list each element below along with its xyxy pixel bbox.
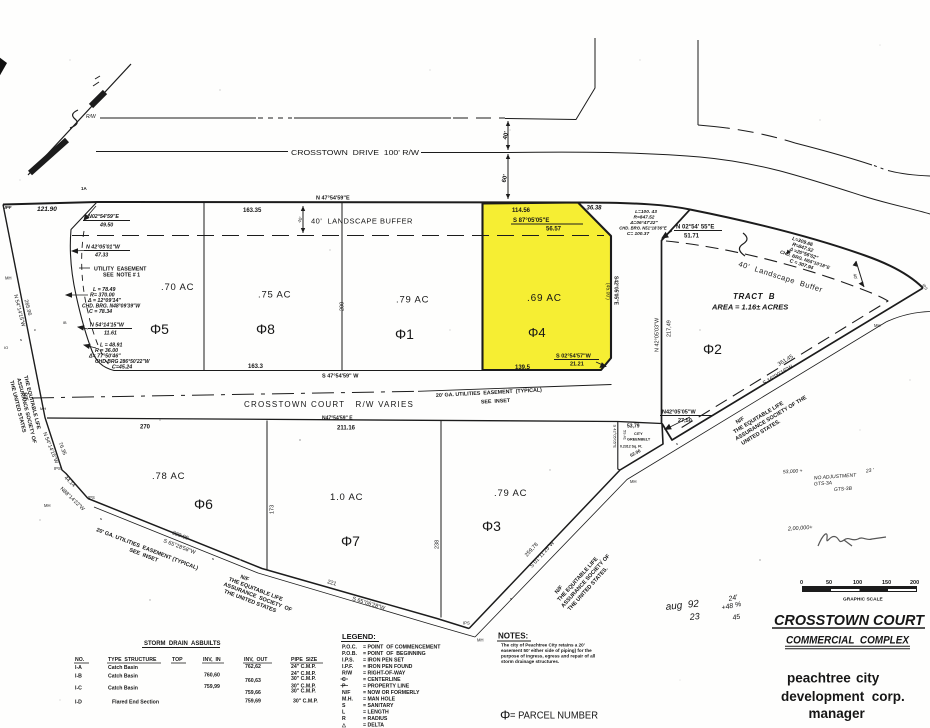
svg-text:TRACT B: TRACT B: [733, 292, 775, 301]
svg-text:= MAN HOLE: = MAN HOLE: [363, 697, 396, 703]
svg-text:P: P: [342, 684, 346, 690]
svg-text:I-A: I-A: [75, 665, 82, 671]
svg-text:Φ5: Φ5: [150, 321, 169, 337]
svg-text:Φ1: Φ1: [395, 326, 414, 342]
svg-text:= PARCEL NUMBER: = PARCEL NUMBER: [510, 710, 598, 722]
svg-text:= SANITARY: = SANITARY: [363, 703, 394, 709]
svg-text:MH: MH: [44, 503, 51, 508]
svg-text:Φ7: Φ7: [341, 533, 360, 549]
svg-text:238: 238: [435, 540, 441, 549]
svg-text:150: 150: [882, 580, 891, 586]
svg-text:21.21: 21.21: [570, 362, 584, 368]
svg-text:TYPE STRUCTURE: TYPE STRUCTURE: [108, 657, 157, 663]
svg-text:163.3: 163.3: [248, 364, 264, 370]
svg-text:AREA = 1.16± ACRES: AREA = 1.16± ACRES: [711, 303, 788, 312]
svg-text:I-B: I-B: [75, 674, 82, 680]
svg-text:= PROPERTY LINE: = PROPERTY LINE: [363, 684, 410, 690]
svg-text:759,69: 759,69: [245, 699, 261, 705]
svg-text:.79 AC: .79 AC: [396, 295, 429, 306]
svg-text:270: 270: [140, 425, 151, 431]
svg-text:Flared End Section: Flared End Section: [112, 700, 159, 706]
svg-text:= POINT OF BEGINNING: = POINT OF BEGINNING: [363, 651, 426, 657]
svg-text:CHD. BRG. N51°18'36"E: CHD. BRG. N51°18'36"E: [619, 226, 667, 231]
svg-text:Φ2: Φ2: [703, 341, 722, 357]
svg-text:= RIGHT-OF-WAY: = RIGHT-OF-WAY: [363, 671, 406, 677]
svg-text:760,63: 760,63: [245, 678, 261, 684]
svg-text:CROSSTOWN COURT: CROSSTOWN COURT: [774, 613, 925, 629]
svg-text:TOP: TOP: [172, 657, 183, 663]
svg-text:N02°54'59"E: N02°54'59"E: [88, 214, 119, 220]
svg-text:Catch Basin: Catch Basin: [108, 665, 138, 671]
svg-text:COMMERCIAL COMPLEX: COMMERCIAL COMPLEX: [786, 635, 910, 647]
svg-text:= DELTA: = DELTA: [363, 723, 384, 728]
svg-text:100: 100: [853, 580, 862, 586]
svg-text:s: s: [676, 441, 678, 446]
svg-text:.78 AC: .78 AC: [152, 471, 185, 482]
svg-text:manager: manager: [809, 706, 866, 721]
svg-text:C= 100.37: C= 100.37: [627, 231, 650, 237]
svg-text:S42°05'05"E: S42°05'05"E: [613, 276, 619, 306]
svg-text:I-C: I-C: [75, 686, 82, 692]
svg-text:Φ4: Φ4: [528, 325, 546, 340]
svg-text:purpose of ingress, egress and: purpose of ingress, egress and repair of…: [501, 654, 595, 659]
svg-text:s: s: [100, 516, 102, 521]
svg-text:S 47°54'59" W: S 47°54'59" W: [322, 374, 359, 380]
svg-text:MH: MH: [630, 479, 637, 484]
svg-text:27,50: 27,50: [678, 418, 692, 424]
svg-text:(45.00'): (45.00'): [605, 283, 611, 300]
svg-text:Φ6: Φ6: [194, 496, 213, 512]
svg-text:= LENGTH: = LENGTH: [363, 710, 389, 716]
svg-text:200: 200: [340, 302, 346, 311]
svg-text:INV, IN: INV, IN: [203, 657, 221, 663]
svg-text:easement 50' either side of pi: easement 50' either side of piping) for …: [501, 648, 592, 653]
svg-text:59.41: 59.41: [623, 430, 628, 441]
svg-text:Catch Basin: Catch Basin: [108, 674, 138, 680]
svg-text:S: S: [342, 703, 346, 709]
svg-text:R=847.52: R=847.52: [634, 215, 655, 221]
svg-text:= IRON PEN SET: = IRON PEN SET: [363, 658, 405, 664]
svg-text:= RADIUS: = RADIUS: [363, 716, 388, 722]
svg-text:development corp.: development corp.: [781, 689, 905, 704]
svg-text:114.56: 114.56: [512, 208, 531, 214]
svg-text:1.0 AC: 1.0 AC: [330, 492, 363, 503]
svg-text:I.P.S.: I.P.S.: [342, 658, 355, 664]
svg-text:S 87°05'05"E: S 87°05'05"E: [513, 218, 549, 224]
svg-text:0.2312 Sq. Ft.: 0.2312 Sq. Ft.: [620, 445, 642, 449]
svg-text:47.33: 47.33: [94, 253, 108, 259]
svg-text:INV, OUT: INV, OUT: [244, 657, 268, 663]
svg-text:211.16: 211.16: [337, 426, 356, 432]
svg-text:IPS: IPS: [54, 466, 61, 471]
svg-text:s: s: [20, 337, 22, 342]
svg-text:s: s: [510, 596, 512, 601]
svg-text:NOTES:: NOTES:: [498, 632, 528, 641]
svg-text:.70 AC: .70 AC: [161, 282, 194, 293]
svg-text:c: c: [34, 327, 36, 332]
svg-text:S 02°54'57"W: S 02°54'57"W: [556, 354, 592, 360]
svg-text:IB: IB: [63, 321, 67, 325]
svg-text:MH: MH: [477, 638, 484, 643]
svg-text:Φ8: Φ8: [256, 321, 275, 337]
svg-text:759,66: 759,66: [245, 690, 261, 696]
svg-text:PIPE SIZE: PIPE SIZE: [291, 657, 318, 663]
svg-text:= CENTERLINE: = CENTERLINE: [363, 677, 401, 683]
svg-text:760,60: 760,60: [204, 673, 220, 679]
svg-text:STORM DRAIN ASBUILTS: STORM DRAIN ASBUILTS: [144, 641, 221, 647]
svg-text:50: 50: [826, 580, 832, 586]
svg-text:0: 0: [800, 580, 803, 586]
svg-text:163.35: 163.35: [243, 208, 262, 214]
svg-text:23: 23: [688, 611, 700, 622]
svg-text:N 47°54'59"E: N 47°54'59"E: [316, 196, 350, 202]
svg-text:The city of Peachtree City ret: The city of Peachtree City retains a 20': [501, 643, 585, 648]
svg-text:MH: MH: [40, 406, 46, 411]
svg-text:N47°54'59" E: N47°54'59" E: [322, 416, 353, 422]
svg-text:CROSSTOWN DRIVE 100' R/W: CROSSTOWN DRIVE 100' R/W: [291, 148, 420, 157]
svg-text:CROSSTOWN COURT R/W VARIES: CROSSTOWN COURT R/W VARIES: [244, 400, 414, 409]
svg-text:N 02°54' 55"E: N 02°54' 55"E: [676, 225, 714, 231]
svg-text:R/W: R/W: [86, 114, 97, 120]
svg-text:.75 AC: .75 AC: [258, 290, 291, 301]
svg-text:762,62: 762,62: [245, 664, 261, 670]
svg-text:49.50: 49.50: [99, 223, 113, 229]
svg-text:L=100. 43: L=100. 43: [635, 209, 657, 215]
svg-text:I.P.F.: I.P.F.: [342, 664, 354, 670]
svg-text:36.38: 36.38: [587, 206, 603, 212]
svg-text:N42°05'05"W: N42°05'05"W: [662, 410, 696, 416]
svg-text:.69 AC: .69 AC: [527, 293, 562, 304]
svg-text:200: 200: [910, 580, 919, 586]
svg-text:759,99: 759,99: [204, 684, 220, 690]
svg-text:GRAPHIC SCALE: GRAPHIC SCALE: [843, 597, 884, 603]
svg-text:R/W: R/W: [342, 671, 352, 677]
svg-text:C: C: [342, 677, 346, 683]
svg-text:SEE NOTE # 1: SEE NOTE # 1: [103, 273, 140, 279]
svg-text:Φ3: Φ3: [482, 518, 501, 534]
svg-text:11.61: 11.61: [104, 331, 117, 337]
svg-text:= IRON PEN FOUND: = IRON PEN FOUND: [363, 664, 413, 670]
svg-text:121.90: 121.90: [37, 206, 57, 213]
svg-text:217,49: 217,49: [667, 320, 673, 337]
svg-text:.79 AC: .79 AC: [494, 488, 527, 499]
svg-text:R: R: [342, 716, 346, 722]
svg-text:51.71: 51.71: [684, 234, 700, 240]
svg-text:24" C.M.P.: 24" C.M.P.: [291, 664, 316, 670]
svg-text:N 42°05'03"W: N 42°05'03"W: [655, 317, 661, 352]
svg-text:139.5: 139.5: [515, 365, 531, 371]
svg-text:LEGEND:: LEGEND:: [342, 632, 376, 641]
svg-text:IPF: IPF: [5, 205, 12, 210]
svg-text:= POINT OF COMMENCEMENT: = POINT OF COMMENCEMENT: [363, 645, 441, 651]
svg-text:C=45.24: C=45.24: [112, 365, 132, 371]
svg-text:IPS: IPS: [463, 621, 470, 626]
svg-text:CITY: CITY: [634, 432, 643, 436]
svg-text:MH: MH: [874, 323, 881, 328]
svg-text:Φ: Φ: [500, 708, 510, 723]
svg-text:Catch Basin: Catch Basin: [108, 686, 138, 692]
svg-text:M.H.: M.H.: [342, 697, 354, 703]
svg-text:53,79: 53,79: [627, 424, 640, 430]
svg-text:IPS: IPS: [88, 495, 95, 500]
svg-text:30" C.M.P.: 30" C.M.P.: [291, 689, 316, 695]
svg-text:peachtree: peachtree: [787, 671, 851, 686]
svg-text:IO: IO: [4, 345, 8, 350]
svg-text:N/F: N/F: [342, 690, 350, 696]
svg-text:N 42°05'01"W: N 42°05'01"W: [86, 245, 121, 251]
svg-text:30" C.M.P.: 30" C.M.P.: [291, 676, 316, 682]
svg-text:S 42°05'05"E: S 42°05'05"E: [613, 425, 618, 449]
svg-text:= NOW OR FORMERLY: = NOW OR FORMERLY: [363, 690, 420, 696]
svg-text:173: 173: [270, 505, 276, 514]
svg-text:GREENBELT: GREENBELT: [627, 438, 651, 442]
svg-text:city: city: [856, 671, 880, 686]
svg-text:MH: MH: [5, 276, 12, 281]
svg-text:1A: 1A: [81, 186, 88, 191]
svg-text:storm drainage structures.: storm drainage structures.: [501, 659, 559, 664]
svg-text:P.O.C.: P.O.C.: [342, 645, 357, 651]
svg-text:56.57: 56.57: [546, 227, 562, 233]
svg-text:C = 78.34: C = 78.34: [89, 309, 112, 315]
svg-text:s: s: [212, 556, 214, 561]
svg-text:40' LANDSCAPE BUFFER: 40' LANDSCAPE BUFFER: [311, 217, 413, 226]
svg-text:30" C.M.P.: 30" C.M.P.: [293, 699, 318, 705]
svg-text:P.O.B.: P.O.B.: [342, 651, 357, 657]
svg-text:N 54°14'15"W: N 54°14'15"W: [90, 323, 125, 329]
svg-text:NO.: NO.: [75, 657, 85, 663]
svg-text:I-D: I-D: [75, 700, 82, 706]
